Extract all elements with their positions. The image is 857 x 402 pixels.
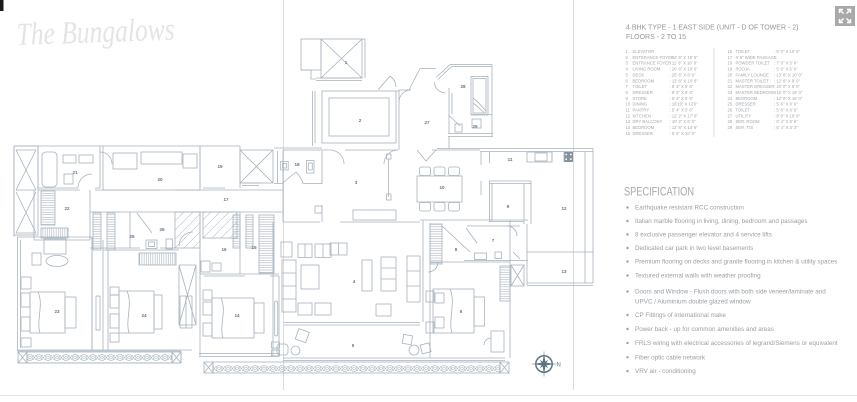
svg-text:KITCHEN: KITCHEN bbox=[633, 113, 651, 118]
svg-text:BEDROOM: BEDROOM bbox=[633, 78, 655, 83]
svg-text:15: 15 bbox=[626, 131, 631, 136]
svg-text:SPECIFICATION: SPECIFICATION bbox=[624, 187, 694, 199]
svg-text:: 20' 6" X 16' 6": : 20' 6" X 16' 6" bbox=[670, 67, 699, 72]
svg-text:LIVING ROOM: LIVING ROOM bbox=[633, 67, 661, 72]
svg-text:15: 15 bbox=[251, 245, 257, 250]
svg-text:14: 14 bbox=[234, 313, 240, 318]
svg-text:8: 8 bbox=[455, 247, 458, 252]
svg-text:POOJA: POOJA bbox=[736, 67, 750, 72]
svg-text:MASTER TOILET: MASTER TOILET bbox=[736, 78, 770, 83]
svg-text:N: N bbox=[557, 363, 561, 369]
svg-text:18: 18 bbox=[294, 162, 300, 167]
svg-text:27: 27 bbox=[728, 113, 733, 118]
svg-text:5: 5 bbox=[352, 343, 355, 348]
svg-text:SER. TOI: SER. TOI bbox=[736, 125, 754, 130]
svg-text:23: 23 bbox=[54, 309, 60, 314]
svg-text:13: 13 bbox=[561, 269, 567, 274]
svg-text:11: 11 bbox=[508, 157, 513, 162]
svg-text:: 10' 2" X 6' 0": : 10' 2" X 6' 0" bbox=[670, 119, 697, 124]
svg-text:CP Fittings of international m: CP Fittings of international make bbox=[635, 312, 726, 319]
svg-text:UPVC / Aluminium double glazed: UPVC / Aluminium double glazed window bbox=[635, 299, 751, 306]
svg-text::: : bbox=[774, 55, 775, 60]
svg-text:3: 3 bbox=[355, 180, 358, 185]
svg-text:Premium flooring on decks and: Premium flooring on decks and granite fl… bbox=[635, 259, 837, 266]
svg-text:DRESSER: DRESSER bbox=[736, 102, 756, 107]
svg-text:: 5' 6" X 8' 0": : 5' 6" X 8' 0" bbox=[774, 102, 798, 107]
svg-text:10: 10 bbox=[439, 185, 445, 190]
svg-text:: 5' 6" X 8' 6": : 5' 6" X 8' 6" bbox=[774, 108, 798, 113]
svg-text:PANTRY: PANTRY bbox=[633, 108, 650, 113]
svg-text:ENTRANCE FOYER: ENTRANCE FOYER bbox=[633, 61, 672, 66]
svg-text:26: 26 bbox=[159, 227, 165, 232]
svg-text:21: 21 bbox=[72, 170, 78, 175]
svg-text:FAMILY LOUNGE: FAMILY LOUNGE bbox=[736, 72, 770, 77]
svg-text:: 12' 0" X 16' 0": : 12' 0" X 16' 0" bbox=[774, 96, 803, 101]
svg-text:18: 18 bbox=[728, 61, 733, 66]
svg-text:7: 7 bbox=[492, 238, 495, 243]
svg-text:26: 26 bbox=[728, 108, 733, 113]
svg-text:The Bungalows: The Bungalows bbox=[16, 11, 175, 52]
svg-text:DINING: DINING bbox=[633, 102, 648, 107]
svg-text:20: 20 bbox=[157, 177, 163, 182]
svg-text:BEDROOM: BEDROOM bbox=[633, 125, 655, 130]
svg-text:24: 24 bbox=[728, 96, 733, 101]
svg-text:20: 20 bbox=[728, 72, 733, 77]
svg-text:12: 12 bbox=[561, 206, 567, 211]
svg-text:: 5' 4" X 3' 3": : 5' 4" X 3' 3" bbox=[774, 125, 798, 130]
svg-text:1: 1 bbox=[345, 60, 348, 65]
svg-text:DRY BALCONY: DRY BALCONY bbox=[633, 119, 663, 124]
svg-text:MASTER BEDROOM: MASTER BEDROOM bbox=[736, 90, 777, 95]
svg-text:: 10' 0" X 8' 0": : 10' 0" X 8' 0" bbox=[774, 84, 801, 89]
svg-text:: 16'10" X 12'6": : 16'10" X 12'6" bbox=[670, 102, 699, 107]
svg-text:: 12' 2" X 17' 0": : 12' 2" X 17' 0" bbox=[670, 113, 699, 118]
svg-text:: 12' 6" X 8' 0": : 12' 6" X 8' 0" bbox=[774, 78, 801, 83]
svg-text:12: 12 bbox=[626, 113, 631, 118]
svg-text:19: 19 bbox=[728, 67, 733, 72]
svg-text:29: 29 bbox=[728, 125, 733, 130]
svg-text:25: 25 bbox=[728, 102, 733, 107]
svg-text:13: 13 bbox=[626, 119, 631, 124]
svg-text:MASTER DRESSER: MASTER DRESSER bbox=[736, 84, 775, 89]
svg-text:: 7' 0" X 5' 0": : 7' 0" X 5' 0" bbox=[774, 61, 798, 66]
svg-text:ELEVATOR: ELEVATOR bbox=[633, 49, 655, 54]
svg-text:24: 24 bbox=[141, 313, 147, 318]
svg-text:: 5' 4" X 6' 6": : 5' 4" X 6' 6" bbox=[670, 96, 694, 101]
svg-text:4 BHK TYPE - 1 EAST SIDE (UNIT: 4 BHK TYPE - 1 EAST SIDE (UNIT - D OF TO… bbox=[626, 25, 798, 32]
svg-text:19: 19 bbox=[217, 164, 223, 169]
svg-text:: 11' 6" X 16' 6": : 11' 6" X 16' 6" bbox=[670, 61, 699, 66]
svg-text:21: 21 bbox=[728, 78, 733, 83]
svg-text:VRV air - conditioning: VRV air - conditioning bbox=[635, 368, 696, 375]
svg-text:Fiber optic cable network: Fiber optic cable network bbox=[635, 354, 706, 361]
svg-text:SER. ROOM: SER. ROOM bbox=[736, 119, 760, 124]
svg-text:STORE: STORE bbox=[633, 96, 648, 101]
svg-text:TOILET: TOILET bbox=[736, 108, 751, 113]
svg-text:27: 27 bbox=[424, 120, 430, 125]
svg-text:6: 6 bbox=[460, 309, 463, 314]
svg-text:BEDROOM: BEDROOM bbox=[736, 96, 758, 101]
svg-text:11: 11 bbox=[626, 108, 631, 113]
svg-text:DRESSER: DRESSER bbox=[633, 131, 653, 136]
svg-text:22: 22 bbox=[64, 206, 70, 211]
svg-text:: 13' 6" X 10' 0": : 13' 6" X 10' 0" bbox=[774, 72, 803, 77]
svg-text:Textured external walls with w: Textured external walls with weather pro… bbox=[635, 273, 761, 280]
svg-text:28: 28 bbox=[728, 119, 733, 124]
svg-text:17: 17 bbox=[728, 55, 733, 60]
svg-text:FLOORS - 2 TO 15: FLOORS - 2 TO 15 bbox=[626, 34, 686, 41]
svg-text:16: 16 bbox=[728, 49, 733, 54]
svg-text:: 16' 0" X 16' 0": : 16' 0" X 16' 0" bbox=[774, 90, 803, 95]
svg-text:4: 4 bbox=[353, 279, 356, 284]
svg-text:: 25' 6" X 8' 6": : 25' 6" X 8' 6" bbox=[670, 72, 697, 77]
svg-text:Dedicated car park in two leve: Dedicated car park in two level basement… bbox=[635, 245, 753, 252]
svg-text:: 13' 6" X 16' 6": : 13' 6" X 16' 6" bbox=[670, 55, 699, 60]
svg-text:10: 10 bbox=[626, 102, 631, 107]
svg-text:: 5' 6" X 10' 0": : 5' 6" X 10' 0" bbox=[670, 131, 697, 136]
svg-text:: 13' 6" X 16' 6": : 13' 6" X 16' 6" bbox=[670, 78, 699, 83]
svg-text:: 8' 0" X 10' 0": : 8' 0" X 10' 0" bbox=[774, 49, 801, 54]
svg-text:DRESSER: DRESSER bbox=[633, 90, 653, 95]
svg-text:ENTERANCE FOYER: ENTERANCE FOYER bbox=[633, 55, 674, 60]
svg-text:TOILET: TOILET bbox=[633, 84, 648, 89]
svg-text:DECK: DECK bbox=[633, 72, 645, 77]
svg-text:Doors and Window - Flush doors: Doors and Window - Flush doors with both… bbox=[635, 289, 826, 296]
svg-text:: 8' 3" X 6' 6": : 8' 3" X 6' 6" bbox=[670, 84, 694, 89]
svg-text:Italian marble flooring in liv: Italian marble flooring in living, dinin… bbox=[635, 218, 808, 225]
svg-text:: 5' 0" X 5' 0": : 5' 0" X 5' 0" bbox=[774, 67, 798, 72]
svg-text:POWDER TOILET: POWDER TOILET bbox=[736, 61, 771, 66]
svg-text:23: 23 bbox=[728, 90, 733, 95]
svg-text:17: 17 bbox=[223, 197, 229, 202]
svg-text:16: 16 bbox=[221, 247, 227, 252]
svg-text:25: 25 bbox=[129, 234, 135, 239]
svg-text:22: 22 bbox=[728, 84, 733, 89]
svg-text:: 5' 4" X 5' 6": : 5' 4" X 5' 6" bbox=[670, 108, 694, 113]
svg-text:Power back - up for common ame: Power back - up for common amenities and… bbox=[635, 326, 774, 333]
svg-text:TOILET: TOILET bbox=[736, 49, 751, 54]
svg-text:: 8' 2" X 6' 6": : 8' 2" X 6' 6" bbox=[670, 90, 694, 95]
svg-text:FRLS wiring with electrical ac: FRLS wiring with electrical accessories … bbox=[635, 340, 838, 347]
svg-text:9: 9 bbox=[507, 204, 510, 209]
svg-text:UTILITY: UTILITY bbox=[736, 113, 752, 118]
svg-text:8 exclusive passenger elevator: 8 exclusive passenger elevator and 4 ser… bbox=[635, 232, 772, 239]
svg-text:: 8' 4" X 8' 6": : 8' 4" X 8' 6" bbox=[774, 119, 798, 124]
svg-text:14: 14 bbox=[626, 125, 631, 130]
svg-text:29: 29 bbox=[472, 124, 478, 129]
svg-text:2: 2 bbox=[359, 118, 362, 123]
svg-text:4' 6" WIDE PASSAGE: 4' 6" WIDE PASSAGE bbox=[736, 55, 777, 60]
svg-text:28: 28 bbox=[460, 84, 466, 89]
svg-text:Earthquake resistant RCC const: Earthquake resistant RCC construction bbox=[635, 205, 744, 212]
svg-text:: 8' 0" X 10' 0": : 8' 0" X 10' 0" bbox=[774, 113, 801, 118]
svg-text:: 12' 6" X 14' 6": : 12' 6" X 14' 6" bbox=[670, 125, 699, 130]
